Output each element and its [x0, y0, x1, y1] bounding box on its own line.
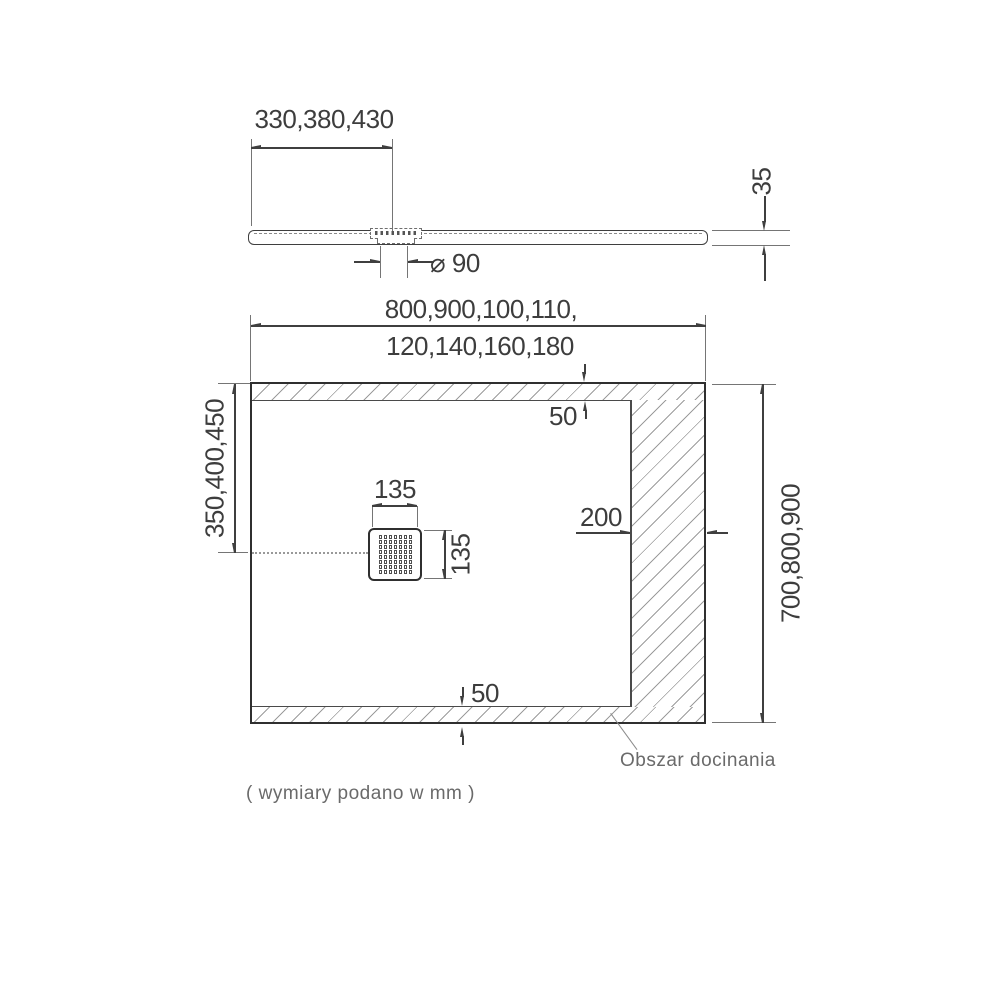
dim-line — [762, 384, 764, 723]
drain-center-dotted-line — [252, 552, 368, 554]
grate-cell — [384, 540, 387, 544]
grate-cell — [384, 570, 387, 574]
arrow-left — [707, 530, 717, 534]
arrow-up — [232, 384, 236, 394]
tray-slope-dashed-line — [254, 233, 702, 234]
arrow-down — [582, 372, 586, 382]
grate-cell — [399, 555, 402, 559]
trim-inner-line-right — [630, 400, 632, 707]
arrow-up — [460, 727, 464, 737]
grate-cell — [399, 565, 402, 569]
thickness-dim-text: 35 — [749, 162, 776, 202]
grate-cell — [379, 535, 382, 539]
grate-cell — [379, 555, 382, 559]
grate-cell — [399, 535, 402, 539]
grate-cell — [384, 535, 387, 539]
trim-inner-line-bottom — [252, 706, 631, 707]
grate-cell — [389, 555, 392, 559]
ext-line — [712, 722, 776, 723]
grate-cell — [404, 570, 407, 574]
arrow-left — [408, 259, 418, 263]
grate-cell — [404, 550, 407, 554]
trim-area-top — [252, 384, 704, 400]
grate-cell — [409, 540, 412, 544]
grate-cell — [384, 560, 387, 564]
arrow-up — [760, 384, 764, 394]
drain-side-recess — [377, 238, 415, 244]
grate-cell — [409, 545, 412, 549]
plan-width-dim-line2: 120,140,160,180 — [330, 333, 630, 360]
ext-line — [424, 530, 452, 531]
grate-cell — [394, 550, 397, 554]
grate-cell — [409, 550, 412, 554]
trim-area-label: Obszar docinania — [620, 750, 776, 772]
ext-line — [380, 246, 381, 278]
grate-cell — [379, 565, 382, 569]
ext-line — [712, 245, 790, 246]
grate-cell — [404, 565, 407, 569]
grate-cell — [379, 560, 382, 564]
grate-cell — [389, 550, 392, 554]
right-trim-dim-text: 200 — [571, 504, 631, 531]
grate-cell — [389, 560, 392, 564]
grate-cell — [389, 540, 392, 544]
bottom-trim-dim-text: 50 — [465, 680, 505, 707]
grate-cell — [384, 555, 387, 559]
ext-line — [251, 139, 252, 226]
ext-line — [392, 139, 393, 231]
arrow-left — [372, 503, 382, 507]
plan-width-dim-line1: 800,900,100,110, — [331, 296, 631, 323]
arrow-down — [460, 696, 464, 706]
grate-cell — [399, 540, 402, 544]
ext-line — [417, 506, 418, 527]
arrow-down — [760, 713, 764, 723]
arrow-right — [382, 145, 392, 149]
arrow-up — [583, 401, 587, 411]
grate-cell — [399, 545, 402, 549]
grate-cell — [394, 535, 397, 539]
arrow-left — [251, 145, 261, 149]
grate-cell — [384, 565, 387, 569]
grate-cell — [389, 565, 392, 569]
dim-line — [251, 147, 392, 149]
grate-cell — [404, 545, 407, 549]
drain-height-dim-text: 135 — [448, 530, 475, 580]
grate-cell — [404, 540, 407, 544]
drain-grate — [379, 535, 412, 574]
grate-cell — [379, 570, 382, 574]
drain-center-dim-text: 350,400,450 — [202, 389, 229, 549]
grate-cell — [394, 565, 397, 569]
grate-cell — [409, 565, 412, 569]
arrow-up — [762, 245, 766, 255]
grate-cell — [404, 560, 407, 564]
grate-cell — [379, 545, 382, 549]
top-trim-dim-text: 50 — [543, 403, 583, 430]
grate-cell — [409, 535, 412, 539]
grate-cell — [384, 545, 387, 549]
grate-cell — [379, 540, 382, 544]
arrow-down — [232, 543, 236, 553]
grate-cell — [394, 570, 397, 574]
grate-cell — [409, 555, 412, 559]
ext-line — [712, 230, 790, 231]
grate-cell — [409, 570, 412, 574]
ext-line — [372, 506, 373, 527]
drain-offset-dim-text: 330,380,430 — [249, 106, 399, 133]
grate-cell — [394, 560, 397, 564]
drain-side-grate-ticks — [375, 231, 416, 235]
grate-cell — [384, 550, 387, 554]
arrow-right — [370, 259, 380, 263]
arrow-left — [251, 323, 261, 327]
arrow-down — [442, 569, 446, 579]
grate-cell — [399, 560, 402, 564]
trim-area-bottom — [252, 707, 704, 722]
dim-line — [462, 736, 464, 745]
grate-cell — [399, 570, 402, 574]
grate-cell — [394, 540, 397, 544]
arrow-right — [620, 530, 630, 534]
ext-line — [424, 578, 452, 579]
arrow-right — [407, 503, 417, 507]
dim-line — [251, 325, 706, 327]
drain-width-dim-text: 135 — [370, 476, 420, 503]
grate-cell — [404, 535, 407, 539]
grate-cell — [394, 545, 397, 549]
grate-cell — [409, 560, 412, 564]
grate-cell — [399, 550, 402, 554]
grate-cell — [389, 570, 392, 574]
arrow-down — [762, 221, 766, 231]
grate-cell — [404, 555, 407, 559]
grate-cell — [394, 555, 397, 559]
ext-line — [712, 384, 776, 385]
drain-diameter-dim-text: ⌀ 90 — [430, 250, 480, 277]
trim-area-right — [630, 400, 704, 707]
grate-cell — [379, 550, 382, 554]
dim-line — [234, 384, 236, 553]
units-note: ( wymiary podano w mm ) — [246, 783, 475, 805]
arrow-right — [696, 323, 706, 327]
grate-cell — [389, 545, 392, 549]
depth-dim-text: 700,800,900 — [778, 474, 805, 634]
arrow-up — [442, 530, 446, 540]
dim-line — [764, 254, 766, 281]
dim-line — [585, 410, 587, 419]
technical-drawing-canvas: 330,380,430 ⌀ 90 35 — [0, 0, 1000, 1000]
grate-cell — [389, 535, 392, 539]
